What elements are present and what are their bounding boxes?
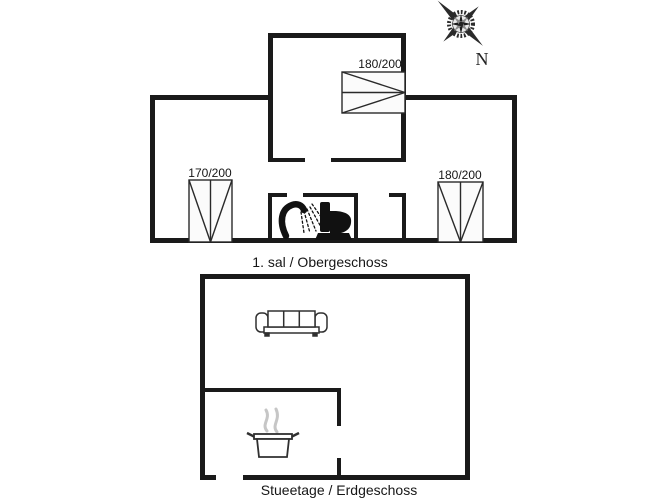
wall-segment bbox=[268, 158, 305, 162]
shower-arm bbox=[282, 204, 304, 236]
sofa-icon bbox=[256, 311, 327, 336]
compass-center-dot bbox=[459, 22, 463, 26]
bed-left bbox=[189, 180, 232, 242]
sofa-cushions bbox=[268, 311, 315, 327]
steam-icon bbox=[265, 409, 277, 432]
wall-segment bbox=[303, 193, 358, 197]
upper-floor-plan: 180/200 170/200 180/200 bbox=[150, 33, 517, 243]
wall-segment bbox=[268, 33, 406, 38]
wall-segment bbox=[465, 274, 470, 480]
toilet-icon bbox=[315, 202, 352, 240]
wall-segment bbox=[401, 95, 517, 100]
wall-segment bbox=[150, 95, 268, 100]
upper-floor-caption: 1. sal / Obergeschoss bbox=[252, 254, 387, 270]
wall-segment bbox=[200, 475, 216, 480]
pot-body bbox=[257, 439, 289, 457]
toilet-base bbox=[315, 233, 352, 240]
bed-attic bbox=[342, 72, 405, 113]
sofa-seat bbox=[264, 327, 319, 333]
steam-wisp bbox=[275, 409, 277, 432]
wall-segment bbox=[402, 193, 406, 243]
compass-rose-icon bbox=[420, 0, 501, 64]
wall-segment bbox=[354, 193, 358, 243]
sofa-foot bbox=[313, 333, 317, 336]
steam-wisp bbox=[265, 410, 267, 431]
bed-attic-label: 180/200 bbox=[358, 57, 402, 71]
ground-floor-plan bbox=[200, 274, 470, 480]
sofa-foot bbox=[265, 333, 269, 336]
bed-right-label: 180/200 bbox=[438, 168, 482, 182]
wall-segment bbox=[243, 475, 470, 480]
wall-segment bbox=[268, 33, 273, 162]
wall-segment bbox=[512, 95, 517, 243]
bed-right bbox=[438, 182, 483, 242]
shower-icon bbox=[282, 204, 324, 236]
wall-segment bbox=[200, 274, 470, 279]
cooking-pot-icon bbox=[247, 433, 299, 457]
ground-floor-walls bbox=[200, 274, 470, 480]
wall-segment bbox=[331, 158, 406, 162]
bed-left-label: 170/200 bbox=[188, 166, 232, 180]
wall-segment bbox=[200, 388, 341, 392]
toilet-bowl bbox=[330, 211, 351, 234]
wall-segment bbox=[389, 193, 406, 197]
floorplan-page: 180/200 170/200 180/200 bbox=[0, 0, 667, 500]
compass-north-label: N bbox=[476, 49, 489, 69]
wall-segment bbox=[337, 388, 341, 426]
ground-floor-caption: Stueetage / Erdgeschoss bbox=[261, 482, 417, 498]
wall-segment bbox=[200, 274, 205, 480]
toilet-cistern bbox=[320, 202, 330, 232]
wall-segment bbox=[268, 193, 272, 243]
wall-segment bbox=[150, 95, 155, 243]
wall-segment bbox=[337, 458, 341, 480]
